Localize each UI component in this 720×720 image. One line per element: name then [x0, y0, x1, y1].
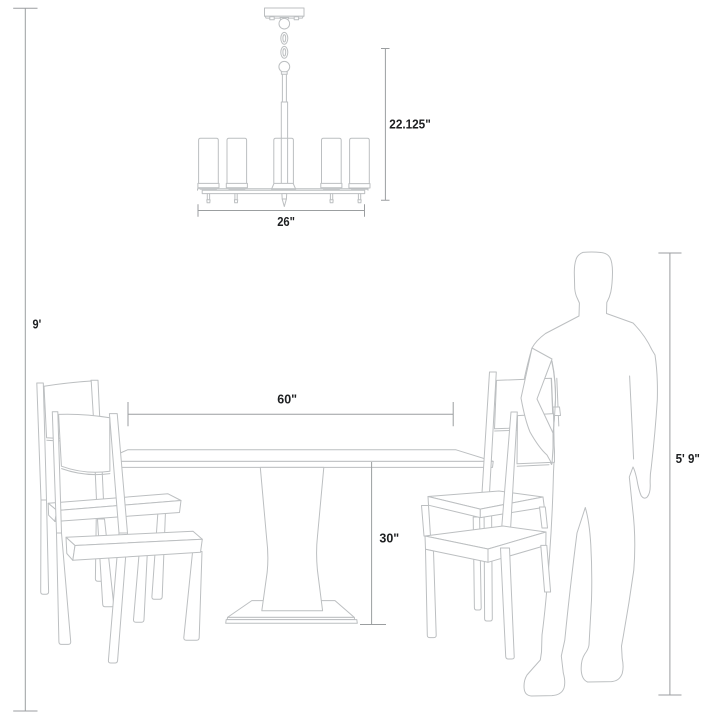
- svg-text:30": 30": [379, 531, 399, 546]
- svg-text:26": 26": [277, 214, 295, 229]
- svg-text:5' 9": 5' 9": [676, 451, 700, 466]
- svg-text:22.125": 22.125": [389, 116, 431, 131]
- svg-text:9': 9': [33, 316, 42, 331]
- svg-text:60": 60": [277, 391, 297, 406]
